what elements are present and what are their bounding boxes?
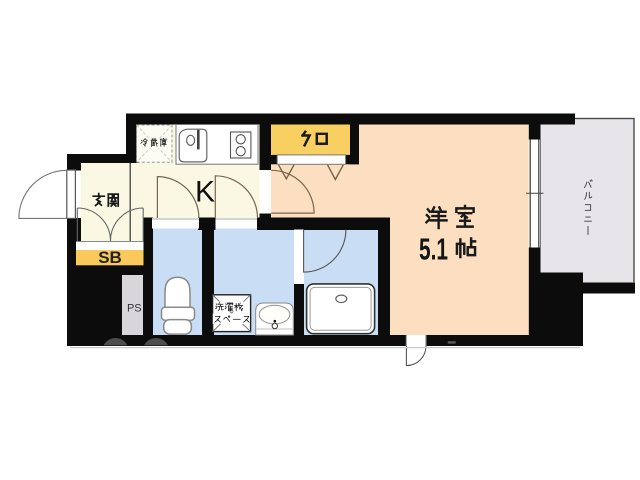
svg-text:PS: PS: [127, 303, 142, 315]
svg-text:5.1: 5.1: [419, 232, 448, 267]
svg-text:SB: SB: [98, 248, 122, 267]
svg-text:K: K: [195, 176, 215, 209]
